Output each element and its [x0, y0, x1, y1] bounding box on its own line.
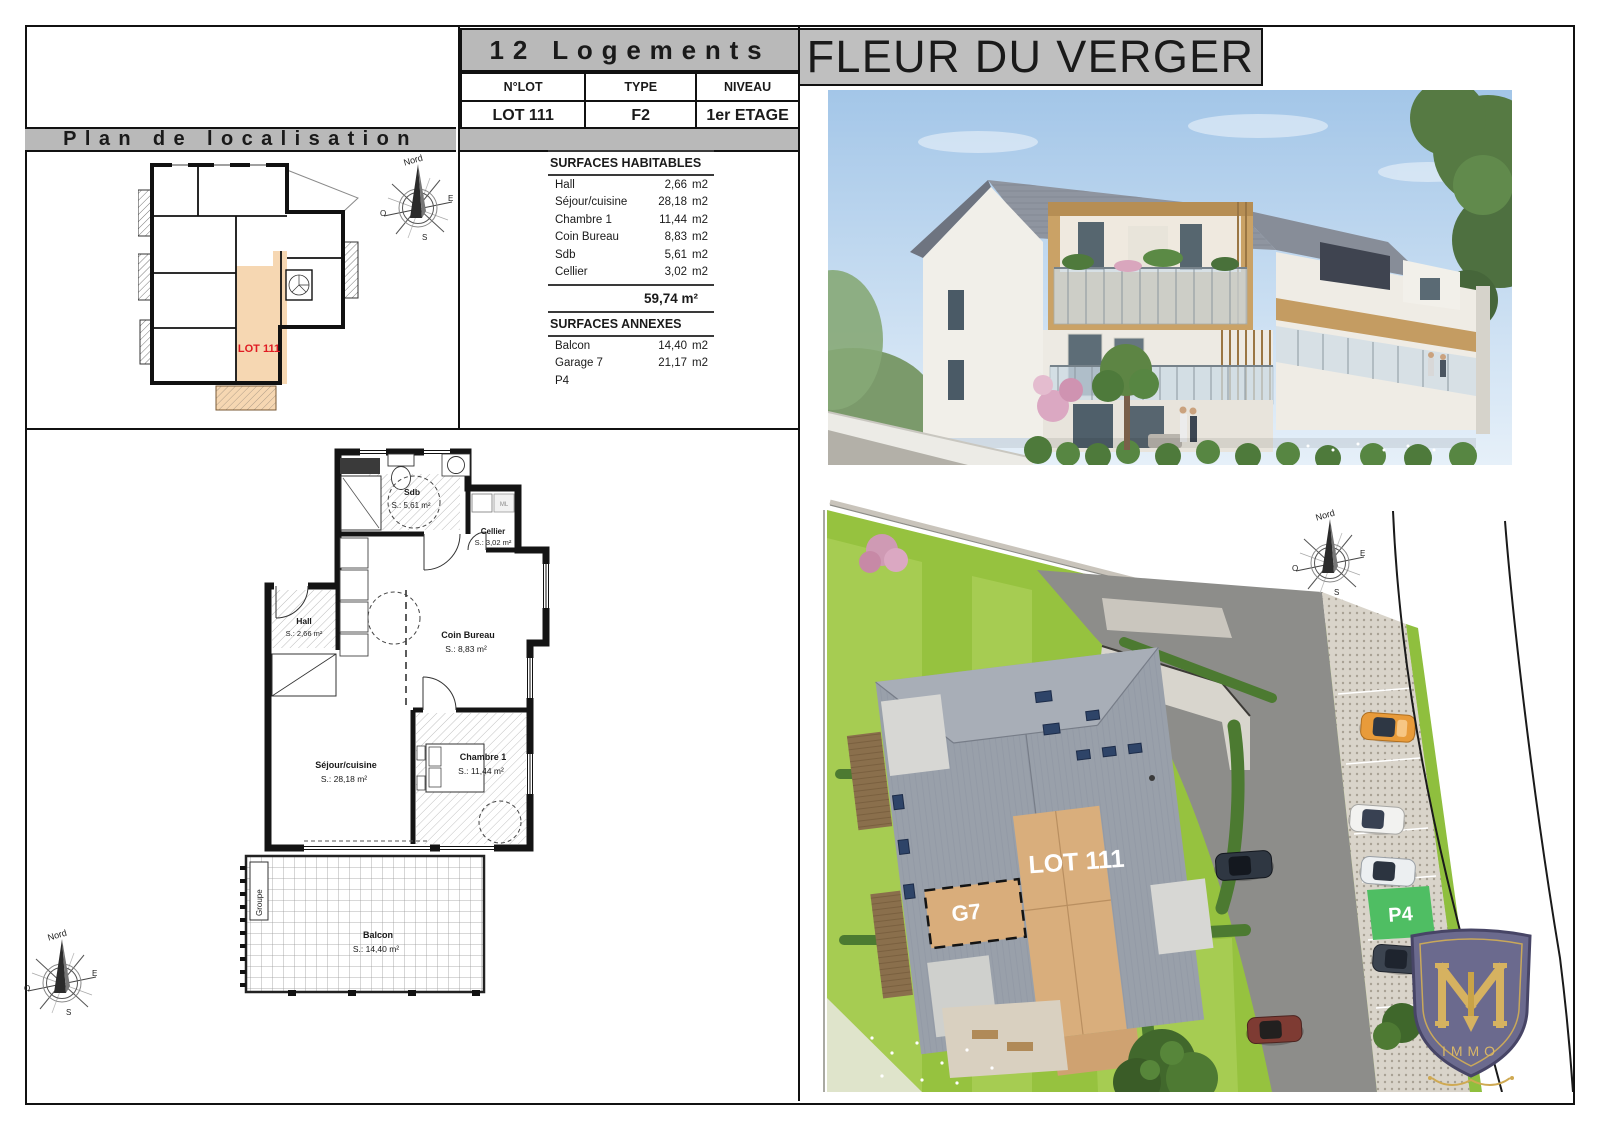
col-lot: N°LOT	[461, 73, 585, 101]
surface-value: 2,66	[647, 179, 687, 191]
compass-rose-icon	[378, 150, 458, 250]
room-name: Sdb	[404, 487, 420, 497]
surface-unit: m2	[687, 340, 714, 352]
surfaces-annexes-title: SURFACES ANNEXES	[548, 313, 714, 337]
siteplan-garage-label: G7	[950, 899, 982, 927]
logo-shield-icon	[1412, 930, 1530, 1085]
vertical-divider	[798, 25, 800, 1101]
room-area: S.: 28,18 m²	[321, 774, 367, 784]
mini-plan-graphics	[138, 162, 358, 410]
surface-row: P4	[548, 372, 714, 390]
room-area: S.: 11,44 m²	[458, 766, 504, 776]
surface-label: P4	[555, 375, 647, 387]
room-area: S.: 3,02 m²	[475, 538, 512, 547]
surface-value: 5,61	[647, 249, 687, 261]
surface-unit: m2	[687, 214, 714, 226]
surface-row: Séjour/cuisine 28,18 m2	[548, 194, 714, 212]
courtyard	[942, 1000, 1068, 1078]
surface-label: Coin Bureau	[555, 231, 647, 243]
gray-strip	[460, 127, 798, 152]
surface-row: Hall 2,66 m2	[548, 176, 714, 194]
surface-label: Hall	[555, 179, 647, 191]
surface-unit: m2	[687, 196, 714, 208]
surface-label: Chambre 1	[555, 214, 647, 226]
room-name: Balcon	[363, 930, 393, 940]
surfaces-total: 59,74 m²	[548, 284, 714, 313]
surface-label: Cellier	[555, 266, 647, 278]
surface-row: Balcon 14,40 m2	[548, 337, 714, 355]
building-title-band: 12 Logements	[460, 28, 800, 72]
surfaces-panel: SURFACES HABITABLES Hall 2,66 m2 Séjour/…	[548, 150, 714, 390]
surface-label: Sdb	[555, 249, 647, 261]
surface-value: 28,18	[647, 196, 687, 208]
col-level: NIVEAU	[696, 73, 799, 101]
room-area: S.: 2,66 m²	[286, 629, 323, 638]
mini-plan-lot-label: LOT 111	[238, 343, 280, 355]
surface-value: 11,44	[647, 214, 687, 226]
room-name: Hall	[296, 616, 312, 626]
surface-row: Coin Bureau 8,83 m2	[548, 229, 714, 247]
surfaces-habitables-title: SURFACES HABITABLES	[548, 150, 714, 176]
surface-unit: m2	[687, 266, 714, 278]
compass-rose-icon	[22, 925, 102, 1025]
balcony: Groupe	[240, 852, 485, 997]
compass-rose-icon	[1290, 505, 1370, 605]
surface-row: Cellier 3,02 m2	[548, 264, 714, 282]
room-area: S.: 14,40 m²	[353, 944, 399, 954]
lot-table-header-row: N°LOT TYPE NIVEAU	[461, 73, 799, 101]
surface-value: 14,40	[647, 340, 687, 352]
surface-row: Chambre 1 11,44 m2	[548, 211, 714, 229]
localisation-band: Plan de localisation	[25, 127, 456, 152]
plan-sheet: Nord E O S 12 Logements N°LOT TYPE NIVEA…	[0, 0, 1600, 1131]
localisation-title: Plan de localisation	[63, 128, 418, 151]
surface-value: 8,83	[647, 231, 687, 243]
surface-unit: m2	[687, 231, 714, 243]
surface-row: Garage 7 21,17 m2	[548, 355, 714, 373]
room-name: Coin Bureau	[441, 630, 495, 640]
project-title: FLEUR DU VERGER	[807, 31, 1255, 83]
building-3d-rendering	[828, 90, 1512, 465]
washer-label: ML	[500, 502, 509, 508]
surface-unit: m2	[687, 357, 714, 369]
agency-logo: IMMO	[1400, 920, 1542, 1092]
surface-label: Séjour/cuisine	[555, 196, 647, 208]
surface-unit: m2	[687, 249, 714, 261]
surface-unit: m2	[687, 179, 714, 191]
surface-row: Sdb 5,61 m2	[548, 246, 714, 264]
surface-label: Garage 7	[555, 357, 647, 369]
building-title: 12 Logements	[490, 35, 771, 66]
room-name: Chambre 1	[460, 752, 507, 762]
room-area: S.: 8,83 m²	[445, 644, 487, 654]
horizontal-divider	[25, 428, 798, 430]
room-name: Séjour/cuisine	[315, 760, 377, 770]
surface-value: 21,17	[647, 357, 687, 369]
apartment-floor-plan: Groupe Sdb S.: 5,61 m² Cellier S.: 3,02 …	[228, 438, 553, 1013]
room-name: Cellier	[481, 527, 505, 536]
logo-caption: IMMO	[1442, 1043, 1500, 1059]
col-type: TYPE	[585, 73, 696, 101]
project-title-band: FLEUR DU VERGER	[798, 28, 1263, 86]
surface-value: 3,02	[647, 266, 687, 278]
room-area: S.: 5,61 m²	[391, 501, 430, 510]
lot-table: N°LOT TYPE NIVEAU LOT 111 F2 1er ETAGE	[460, 72, 800, 132]
groupe-label: Groupe	[255, 889, 264, 916]
surface-label: Balcon	[555, 340, 647, 352]
